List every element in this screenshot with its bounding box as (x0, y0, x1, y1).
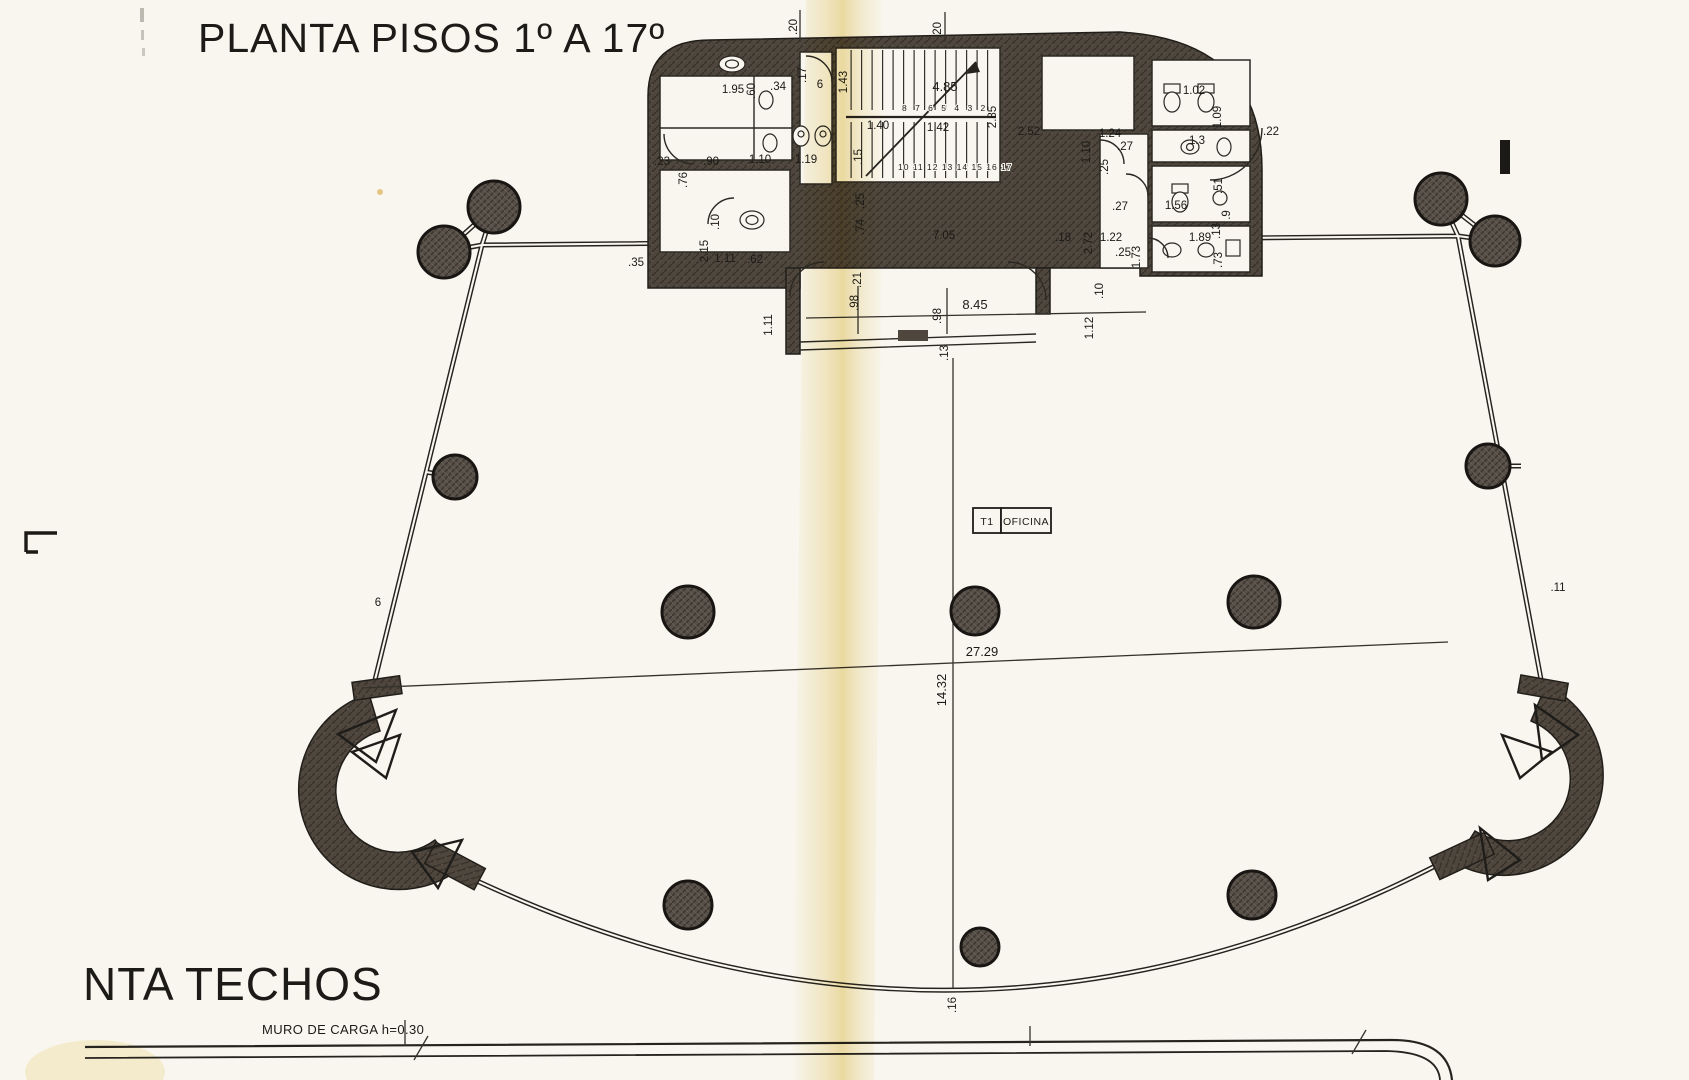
dimension-label: .18 (1055, 232, 1071, 244)
dimension-label: .20 (932, 22, 944, 38)
dimension-label: .27 (1112, 201, 1128, 213)
unit-tag: T1 (980, 516, 993, 528)
dimension-label: 1.22 (1100, 232, 1122, 244)
dimension-label: 1.10 (1081, 141, 1093, 163)
unit-label: OFICINA (1003, 516, 1049, 528)
column (1228, 871, 1276, 919)
paper-speck (377, 189, 383, 195)
dimension-label: .98 (932, 308, 944, 324)
dimension-label: .11 (1550, 582, 1565, 594)
dimension-label: .16 (947, 997, 959, 1013)
dimension-label: 2.85 (987, 106, 999, 128)
dimension-label: 1.24 (1099, 128, 1122, 140)
dimension-label: .51 (1213, 178, 1225, 194)
dimension-label: .60 (746, 83, 758, 99)
dimension-label: .25 (1099, 159, 1111, 175)
dimension-label: 1.12 (1084, 317, 1096, 339)
dimension-label: 1.89 (1189, 232, 1211, 244)
scanned-floorplan-page: 8 7 6 5 4 3 2 10 11 12 13 14 15 16 17 (0, 0, 1689, 1080)
dimension-label: 2.72 (1083, 232, 1095, 254)
dimension-label: .73 (1213, 252, 1225, 268)
dimension-label: .23 (654, 156, 670, 168)
dimension-label: .13 (939, 345, 951, 361)
dimension-label: 1.56 (1165, 200, 1187, 212)
stair-step-numbers-lower: 10 11 12 13 14 15 16 17 (898, 162, 1013, 172)
dimension-label: 7.05 (933, 230, 955, 242)
scan-fold-stripe (792, 0, 884, 1080)
column (1228, 576, 1280, 628)
unit-tag-t1-oficina: T1 OFICINA (973, 508, 1051, 533)
column (468, 181, 520, 233)
dimension-label: 27.29 (966, 644, 999, 659)
dimension-label: 1.95 (722, 84, 744, 96)
stair-step-numbers-upper: 8 7 6 5 4 3 2 (902, 103, 988, 113)
dimension-label: 1.10 (749, 154, 771, 166)
lobby-wall-right (1036, 268, 1050, 314)
dimension-label: 1.11 (714, 253, 736, 265)
column (1415, 173, 1467, 225)
dimension-label: .35 (628, 257, 644, 269)
dimension-label: 2.15 (699, 240, 711, 262)
column (961, 928, 999, 966)
dimension-label: .13 (1211, 223, 1223, 239)
column (418, 226, 470, 278)
shaft-large (1042, 56, 1134, 130)
muro-note: MURO DE CARGA h=0.30 (262, 1022, 424, 1037)
dimension-label: .76 (678, 172, 690, 188)
dimension-label: 1.3 (1189, 135, 1205, 147)
dimension-label: .25 (1115, 247, 1131, 259)
column (662, 586, 714, 638)
floor-plan-canvas: 8 7 6 5 4 3 2 10 11 12 13 14 15 16 17 (0, 0, 1689, 1080)
dimension-label: 1.42 (927, 122, 949, 134)
dimension-label: .20 (788, 19, 800, 35)
dimension-label: .62 (747, 254, 763, 266)
dimension-label: 14.32 (934, 674, 949, 707)
dimension-label: 1.11 (763, 314, 775, 336)
column (433, 455, 477, 499)
dimension-label: .9 (1221, 210, 1233, 220)
column (664, 881, 712, 929)
page-title: PLANTA PISOS 1º A 17º (198, 15, 665, 61)
secondary-title: NTA TECHOS (83, 958, 383, 1010)
dimension-label: 8.45 (962, 297, 987, 312)
dimension-label: 1.09 (1212, 106, 1224, 128)
dimension-label: .90 (703, 156, 719, 168)
dimension-label: .27 (1117, 141, 1133, 153)
dimension-label: .10 (710, 214, 722, 230)
column (1466, 444, 1510, 488)
column (951, 587, 999, 635)
dimension-label: .10 (1094, 283, 1106, 299)
column (1470, 216, 1520, 266)
dimension-label: 6 (375, 597, 381, 609)
dimension-label: 1.73 (1131, 246, 1143, 268)
dimension-label: 4.85 (932, 79, 957, 94)
dimension-label: .34 (770, 81, 787, 93)
dimension-label: .22 (1263, 126, 1279, 138)
dimension-label: 1.02 (1183, 85, 1205, 97)
bathroom-t5 (1152, 166, 1250, 222)
dimension-label: 2.52 (1018, 126, 1040, 138)
